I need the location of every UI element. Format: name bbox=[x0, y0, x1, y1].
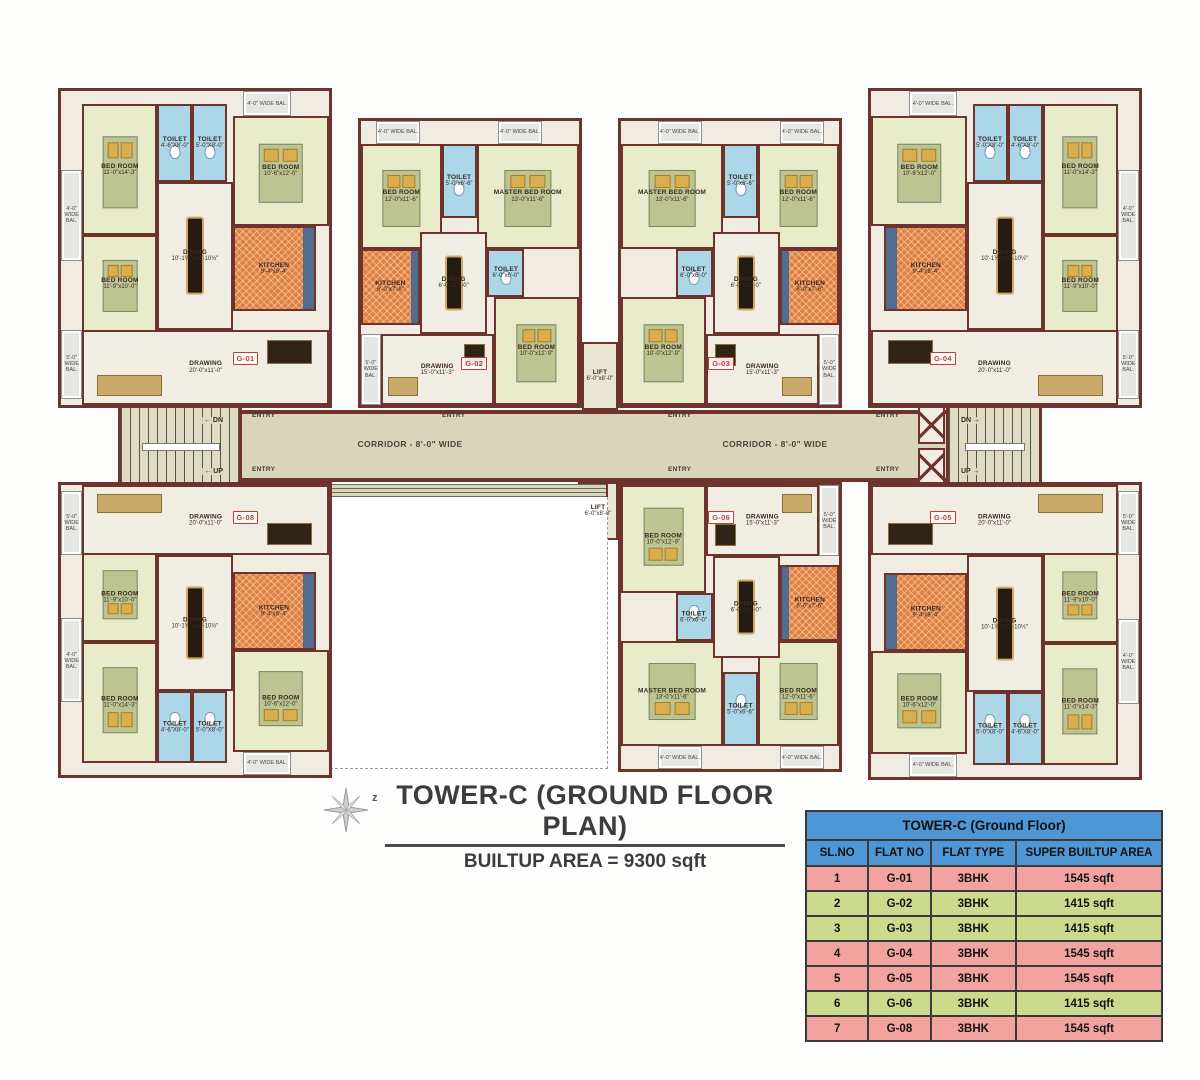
table-cell: 3BHK bbox=[931, 1016, 1016, 1041]
bed-icon bbox=[103, 667, 138, 733]
compass-north-letter: z bbox=[372, 792, 378, 804]
table-cell: 1545 sqft bbox=[1016, 1016, 1162, 1041]
table-cell: 4 bbox=[806, 941, 868, 966]
table-cell: 1415 sqft bbox=[1016, 916, 1162, 941]
flat-label-g-03: G-03 bbox=[708, 357, 734, 370]
room-bed-room: BED ROOM11'-9"x10'-0" bbox=[1043, 235, 1118, 332]
table-title: TOWER-C (Ground Floor) bbox=[806, 811, 1162, 840]
table-cell: 3 bbox=[806, 916, 868, 941]
room-toilet: TOILET5'-0"X8'-0" bbox=[192, 104, 227, 183]
room-balcony: 4'-0" WIDE BAL. bbox=[61, 170, 82, 261]
plan-title: TOWER-C (GROUND FLOOR PLAN) bbox=[385, 780, 785, 847]
bed-icon bbox=[103, 137, 138, 208]
room-toilet: TOILET5'-0"x6'-6" bbox=[442, 144, 477, 218]
flat-label-g-06: G-06 bbox=[708, 511, 734, 524]
entry-label: ENTRY bbox=[668, 466, 691, 473]
table-cell: G-03 bbox=[868, 916, 930, 941]
room-dining: DINING10'-1½"x12'-10½" bbox=[157, 555, 232, 691]
room-bed-room: BED ROOM11'-9"x10'-0" bbox=[82, 235, 157, 332]
room-bed-room: BED ROOM10'-6"x12'-0" bbox=[871, 651, 967, 753]
room-balcony: 5'-0" WIDE BAL. bbox=[1118, 491, 1139, 555]
staircase-right: DN → UP → bbox=[946, 402, 1042, 490]
room-kitchen: KITCHEN6'-0"x7'-6" bbox=[780, 249, 839, 326]
corridor-label-right: CORRIDOR - 8'-0" WIDE bbox=[665, 439, 885, 449]
room-bed-room: BED ROOM10'-6"x12'-0" bbox=[233, 116, 329, 226]
room-balcony: 5'-0" WIDE BAL. bbox=[1118, 330, 1139, 399]
room-balcony: 5'-0" WIDE BAL. bbox=[819, 334, 839, 405]
room-balcony: 5'-0" WIDE BAL. bbox=[819, 485, 839, 556]
room-dining: DINING10'-1½"x12'-10½" bbox=[968, 182, 1043, 330]
entry-label: ENTRY bbox=[668, 412, 691, 419]
room-drawing: DRAWING20'-0"x11'-0" bbox=[82, 485, 329, 555]
room-balcony: 4'-0" WIDE BAL. bbox=[909, 91, 957, 116]
room-bed-room: BED ROOM11'-0"x14'-3" bbox=[1043, 104, 1118, 236]
room-bed-room: BED ROOM11'-0"x14'-3" bbox=[1043, 643, 1118, 766]
unit-g-06: 4'-0" WIDE BAL.4'-0" WIDE BAL.BED ROOM12… bbox=[618, 482, 842, 772]
room-balcony: 4'-0" WIDE BAL. bbox=[61, 618, 82, 702]
room-bed-room: BED ROOM10'-0"x12'-9" bbox=[494, 297, 579, 405]
room-drawing: DRAWING20'-0"x11'-0" bbox=[871, 330, 1118, 405]
table-cell: G-04 bbox=[868, 941, 930, 966]
room-balcony: 4'-0" WIDE BAL. bbox=[780, 121, 824, 144]
room-toilet: TOILET6'-0"x6'-0" bbox=[676, 249, 713, 297]
bed-icon bbox=[780, 170, 817, 227]
stair-dn-label: ← DN bbox=[202, 417, 225, 424]
room-bed-room: BED ROOM10'-6"x12'-0" bbox=[871, 116, 967, 226]
unit-g-01: 4'-0" WIDE BAL.BED ROOM11'-0"x14'-3"TOIL… bbox=[58, 88, 332, 408]
room-balcony: 4'-0" WIDE BAL. bbox=[1118, 170, 1139, 261]
room-master-bed-room: MASTER BED ROOM13'-0"x11'-6" bbox=[477, 144, 579, 249]
room-toilet: TOILET6'-0"x6'-0" bbox=[487, 249, 524, 297]
entry-label: ENTRY bbox=[252, 412, 275, 419]
room-balcony: 4'-0" WIDE BAL. bbox=[658, 746, 702, 769]
room-toilet: TOILET5'-0"X8'-0" bbox=[973, 692, 1008, 765]
stair-up-label: ← UP bbox=[202, 468, 225, 475]
room-balcony: 4'-0" WIDE BAL. bbox=[376, 121, 420, 144]
corridor-parapet-hatch bbox=[310, 484, 608, 497]
table-column-header: FLAT TYPE bbox=[931, 840, 1016, 866]
lift-top: LIFT6'-0"x8'-0" bbox=[582, 342, 618, 410]
room-kitchen: KITCHEN9'-4"x8'-4" bbox=[233, 226, 316, 311]
room-kitchen: KITCHEN6'-0"x7'-6" bbox=[361, 249, 420, 326]
room-balcony: 4'-0" WIDE BAL. bbox=[780, 746, 824, 769]
table-cell: 2 bbox=[806, 891, 868, 916]
table-cell: 3BHK bbox=[931, 866, 1016, 891]
table-cell: 3BHK bbox=[931, 966, 1016, 991]
table-cell: 3BHK bbox=[931, 941, 1016, 966]
unit-g-04: 4'-0" WIDE BAL.BED ROOM11'-0"x14'-3"TOIL… bbox=[868, 88, 1142, 408]
room-toilet: TOILET5'-0"X8'-0" bbox=[973, 104, 1008, 183]
bed-icon bbox=[1063, 260, 1098, 312]
unit-g-08: 4'-0" WIDE BAL.BED ROOM11'-0"x14'-3"TOIL… bbox=[58, 482, 332, 778]
room-balcony: 4'-0" WIDE BAL. bbox=[658, 121, 702, 144]
room-toilet: TOILET5'-0"X8'-0" bbox=[192, 691, 227, 764]
room-kitchen: KITCHEN6'-0"x7'-6" bbox=[780, 565, 839, 642]
unit-g-02: 4'-0" WIDE BAL.4'-0" WIDE BAL.BED ROOM12… bbox=[358, 118, 582, 408]
plan-subtitle: BUILTUP AREA = 9300 sqft bbox=[385, 851, 785, 873]
flat-label-g-02: G-02 bbox=[461, 357, 487, 370]
table-cell: 6 bbox=[806, 991, 868, 1016]
table-cell: 3BHK bbox=[931, 991, 1016, 1016]
bed-icon bbox=[897, 144, 942, 203]
table-cell: 3BHK bbox=[931, 916, 1016, 941]
room-toilet: TOILET4'-6"X8'-0" bbox=[157, 691, 192, 764]
room-balcony: 4'-0" WIDE BAL. bbox=[243, 91, 291, 116]
entry-label: ENTRY bbox=[876, 412, 899, 419]
room-balcony: 4'-0" WIDE BAL. bbox=[909, 754, 957, 777]
room-bed-room: BED ROOM10'-6"x12'-0" bbox=[233, 650, 329, 752]
entry-label: ENTRY bbox=[252, 466, 275, 473]
table-row: 7G-083BHK1545 sqft bbox=[806, 1016, 1162, 1041]
bed-icon bbox=[644, 508, 683, 566]
bed-icon bbox=[644, 324, 683, 382]
flat-label-g-08: G-08 bbox=[233, 511, 259, 524]
table-column-header: FLAT NO bbox=[868, 840, 930, 866]
flat-label-g-04: G-04 bbox=[930, 352, 956, 365]
room-balcony: 5'-0" WIDE BAL. bbox=[61, 491, 82, 555]
room-master-bed-room: MASTER BED ROOM13'-0"x11'-6" bbox=[621, 641, 723, 746]
room-bed-room: BED ROOM11'-0"x14'-3" bbox=[82, 642, 157, 764]
room-balcony: 5'-0" WIDE BAL. bbox=[361, 334, 381, 405]
room-kitchen: KITCHEN9'-4"x8'-4" bbox=[233, 572, 316, 650]
table-cell: G-02 bbox=[868, 891, 930, 916]
room-dining: DINING6'-0"x10'-0" bbox=[420, 232, 488, 334]
stair-dn-label: DN → bbox=[959, 417, 982, 424]
table-cell: 1415 sqft bbox=[1016, 991, 1162, 1016]
table-row: 2G-023BHK1415 sqft bbox=[806, 891, 1162, 916]
room-toilet: TOILET4'-6"X8'-0" bbox=[1008, 104, 1043, 183]
flat-label-g-01: G-01 bbox=[233, 352, 259, 365]
room-dining: DINING6'-0"x10'-0" bbox=[713, 232, 781, 334]
bed-icon bbox=[897, 673, 942, 728]
table-cell: G-05 bbox=[868, 966, 930, 991]
table-cell: G-01 bbox=[868, 866, 930, 891]
table-cell: G-08 bbox=[868, 1016, 930, 1041]
duct-shaft bbox=[918, 448, 945, 486]
title-block: TOWER-C (GROUND FLOOR PLAN) BUILTUP AREA… bbox=[385, 780, 785, 873]
room-dining: DINING6'-0"x10'-0" bbox=[713, 556, 781, 658]
bed-icon bbox=[258, 672, 303, 727]
bed-icon bbox=[1063, 571, 1098, 620]
room-bed-room: BED ROOM11'-9"x10'-0" bbox=[1043, 552, 1118, 643]
table-cell: 1545 sqft bbox=[1016, 866, 1162, 891]
floor-plan-sheet: CORRIDOR - 8'-0" WIDE CORRIDOR - 8'-0" W… bbox=[0, 0, 1200, 1080]
bed-icon bbox=[1063, 668, 1098, 734]
bed-icon bbox=[649, 170, 696, 227]
room-balcony: 4'-0" WIDE BAL. bbox=[243, 752, 291, 775]
bed-icon bbox=[103, 571, 138, 619]
bed-icon bbox=[780, 663, 817, 720]
table-row: 6G-063BHK1415 sqft bbox=[806, 991, 1162, 1016]
bed-icon bbox=[383, 170, 420, 227]
room-bed-room: BED ROOM10'-0"x12'-9" bbox=[621, 297, 706, 405]
room-drawing: DRAWING20'-0"x11'-0" bbox=[82, 330, 329, 405]
room-dining: DINING10'-1½"x12'-10½" bbox=[968, 555, 1043, 692]
table-cell: 1545 sqft bbox=[1016, 941, 1162, 966]
room-drawing: DRAWING20'-0"x11'-0" bbox=[871, 485, 1118, 555]
table-cell: 1545 sqft bbox=[1016, 966, 1162, 991]
table-cell: G-06 bbox=[868, 991, 930, 1016]
corridor-label-left: CORRIDOR - 8'-0" WIDE bbox=[300, 439, 520, 449]
room-bed-room: BED ROOM11'-9"x10'-0" bbox=[82, 552, 157, 642]
table-row: 1G-013BHK1545 sqft bbox=[806, 866, 1162, 891]
room-toilet: TOILET4'-6"X8'-0" bbox=[157, 104, 192, 183]
flat-label-g-05: G-05 bbox=[930, 511, 956, 524]
unit-g-03: 4'-0" WIDE BAL.4'-0" WIDE BAL.BED ROOM12… bbox=[618, 118, 842, 408]
bed-icon bbox=[504, 170, 551, 227]
entry-label: ENTRY bbox=[876, 466, 899, 473]
table-row: 5G-053BHK1545 sqft bbox=[806, 966, 1162, 991]
entry-label: ENTRY bbox=[442, 412, 465, 419]
staircase-left: ← DN ← UP bbox=[118, 402, 242, 490]
table-cell: 1415 sqft bbox=[1016, 891, 1162, 916]
table-row: 4G-043BHK1545 sqft bbox=[806, 941, 1162, 966]
table-cell: 7 bbox=[806, 1016, 868, 1041]
table-column-header: SUPER BUILTUP AREA bbox=[1016, 840, 1162, 866]
table-cell: 5 bbox=[806, 966, 868, 991]
bed-icon bbox=[1063, 137, 1098, 208]
room-bed-room: BED ROOM10'-0"x12'-9" bbox=[621, 485, 706, 593]
unit-g-05: 4'-0" WIDE BAL.BED ROOM11'-0"x14'-3"TOIL… bbox=[868, 482, 1142, 780]
table-header-row: SL.NOFLAT NOFLAT TYPESUPER BUILTUP AREA bbox=[806, 840, 1162, 866]
table-cell: 3BHK bbox=[931, 891, 1016, 916]
stair-up-label: UP → bbox=[959, 468, 982, 475]
room-balcony: 5'-0" WIDE BAL. bbox=[61, 330, 82, 399]
room-balcony: 4'-0" WIDE BAL. bbox=[1118, 619, 1139, 704]
room-kitchen: KITCHEN9'-4"x8'-4" bbox=[884, 226, 967, 311]
room-toilet: TOILET5'-0"x6'-6" bbox=[723, 144, 758, 218]
flat-summary-table: TOWER-C (Ground Floor) SL.NOFLAT NOFLAT … bbox=[805, 810, 1163, 1042]
compass-icon bbox=[322, 786, 370, 834]
room-balcony: 4'-0" WIDE BAL. bbox=[498, 121, 542, 144]
open-area bbox=[310, 497, 608, 769]
room-bed-room: BED ROOM11'-0"x14'-3" bbox=[82, 104, 157, 236]
room-toilet: TOILET4'-6"X8'-0" bbox=[1008, 692, 1043, 765]
duct-shaft bbox=[918, 406, 945, 444]
room-master-bed-room: MASTER BED ROOM13'-0"x11'-6" bbox=[621, 144, 723, 249]
room-kitchen: KITCHEN9'-4"x8'-4" bbox=[884, 573, 967, 652]
room-dining: DINING10'-1½"x12'-10½" bbox=[157, 182, 232, 330]
table-cell: 1 bbox=[806, 866, 868, 891]
bed-icon bbox=[258, 144, 303, 203]
bed-icon bbox=[517, 324, 556, 382]
bed-icon bbox=[103, 260, 138, 312]
table-column-header: SL.NO bbox=[806, 840, 868, 866]
bed-icon bbox=[649, 663, 696, 720]
room-toilet: TOILET5'-0"x6'-6" bbox=[723, 672, 758, 746]
table-row: 3G-033BHK1415 sqft bbox=[806, 916, 1162, 941]
room-toilet: TOILET6'-0"x6'-0" bbox=[676, 593, 713, 641]
